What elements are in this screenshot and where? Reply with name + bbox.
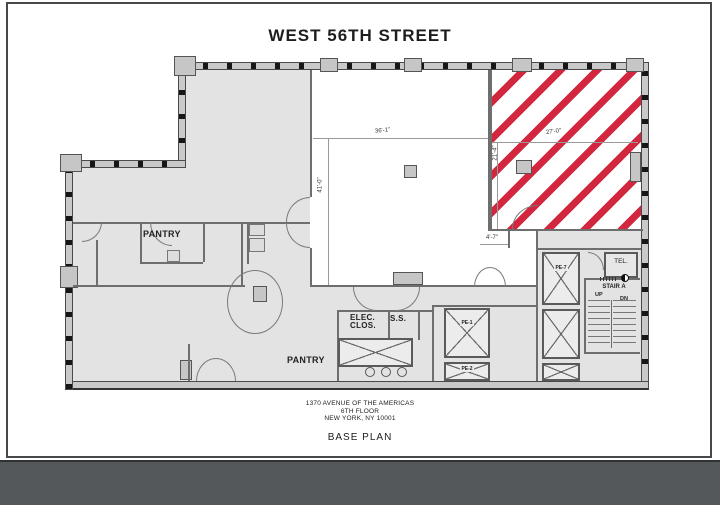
title-block: 1370 AVENUE OF THE AMERICAS 6TH FLOOR NE… (210, 400, 510, 443)
elevator-pe1-label: PE-1 (446, 320, 488, 326)
sink-circle (365, 367, 375, 377)
stair-label: STAIR A (594, 284, 634, 290)
wall-open-area-west (310, 248, 312, 285)
pilaster (393, 272, 423, 285)
stair-up-label: UP (595, 292, 603, 298)
wall-lobby-north (432, 305, 536, 307)
address-line2: 6TH FLOOR (210, 408, 510, 416)
stair-symbol-circle (621, 274, 629, 282)
wall-south (65, 381, 649, 390)
freestanding-column (516, 160, 532, 174)
wall-west-return (65, 160, 186, 168)
elevator-shaft (542, 363, 580, 381)
wall-hatched-south (488, 229, 643, 231)
tel-room (604, 252, 638, 278)
wall-open-area-west (310, 70, 312, 197)
stair-symbol-bar (600, 277, 618, 281)
wall-lobby-west (432, 305, 434, 381)
column (626, 58, 644, 72)
wall-stair-west (584, 278, 586, 352)
street-title: WEST 56TH STREET (180, 26, 540, 46)
elevator-pe7: PE-7 (542, 252, 580, 305)
ss-label: S.S. (390, 314, 406, 323)
wall-room (96, 240, 98, 285)
wall-rooms-north (73, 222, 310, 224)
column (180, 360, 192, 380)
closet-shelf (249, 238, 265, 252)
elec-line2: CLOS. (350, 322, 376, 330)
freestanding-column (404, 165, 417, 178)
hatched-area (490, 70, 641, 229)
wall-room (140, 262, 203, 264)
stair-dn-label: DN (620, 296, 628, 302)
dimension-line (492, 142, 638, 143)
elevator-pe2-label: PE-2 (446, 366, 488, 372)
column (512, 58, 532, 72)
dimension-line (313, 138, 488, 139)
shaded-floor-upper-left (186, 70, 310, 168)
shaded-floor-left (73, 168, 310, 381)
column (320, 58, 338, 72)
wall-core-north (536, 248, 641, 250)
document-viewer: WEST 56TH STREET (0, 0, 720, 505)
wall-hatched-west (488, 70, 490, 229)
sink-circle (381, 367, 391, 377)
stair-divider (611, 300, 612, 348)
wall-room (188, 344, 190, 381)
elec-closet-label: ELEC. CLOS. (350, 314, 376, 330)
dim-corner-offset: 4'-7" (486, 235, 498, 241)
pantry-lower-label: PANTRY (287, 355, 325, 365)
column (60, 154, 82, 172)
service-shaft (338, 338, 413, 367)
pantry-counter (167, 250, 180, 262)
stair-treads (613, 300, 636, 348)
column (174, 56, 196, 76)
dimension-line (328, 138, 329, 285)
closet-shelf (249, 224, 265, 236)
column (630, 152, 641, 182)
tel-room-label: TEL. (604, 258, 638, 265)
pantry-upper-label: PANTRY (143, 229, 181, 239)
wall-core-west (536, 230, 538, 381)
wall-room (140, 222, 142, 262)
dim-hatched-depth: 21'-4" (493, 145, 499, 160)
elevator-pe2: PE-2 (444, 362, 490, 381)
wall-upper-west (178, 62, 186, 168)
drawing-name: BASE PLAN (210, 432, 510, 443)
dimension-line (480, 244, 508, 245)
wall-east (641, 62, 649, 389)
wall-pantry (203, 222, 205, 262)
column (404, 58, 422, 72)
elevator-pe7-label: PE-7 (544, 265, 578, 271)
wall-ss (418, 312, 420, 340)
address-line3: NEW YORK, NY 10001 (210, 415, 510, 423)
wall-jog (508, 229, 510, 248)
viewer-background-band (0, 460, 720, 505)
dim-open-depth: 41'-0" (318, 177, 324, 192)
wall-rooms-south (73, 285, 245, 287)
elevator-pe1: PE-1 (444, 308, 490, 358)
stair-treads (588, 300, 610, 348)
wall-stair-south (584, 352, 640, 354)
elevator-shaft (542, 309, 580, 359)
address-line1: 1370 AVENUE OF THE AMERICAS (210, 400, 510, 408)
sink-circle (397, 367, 407, 377)
